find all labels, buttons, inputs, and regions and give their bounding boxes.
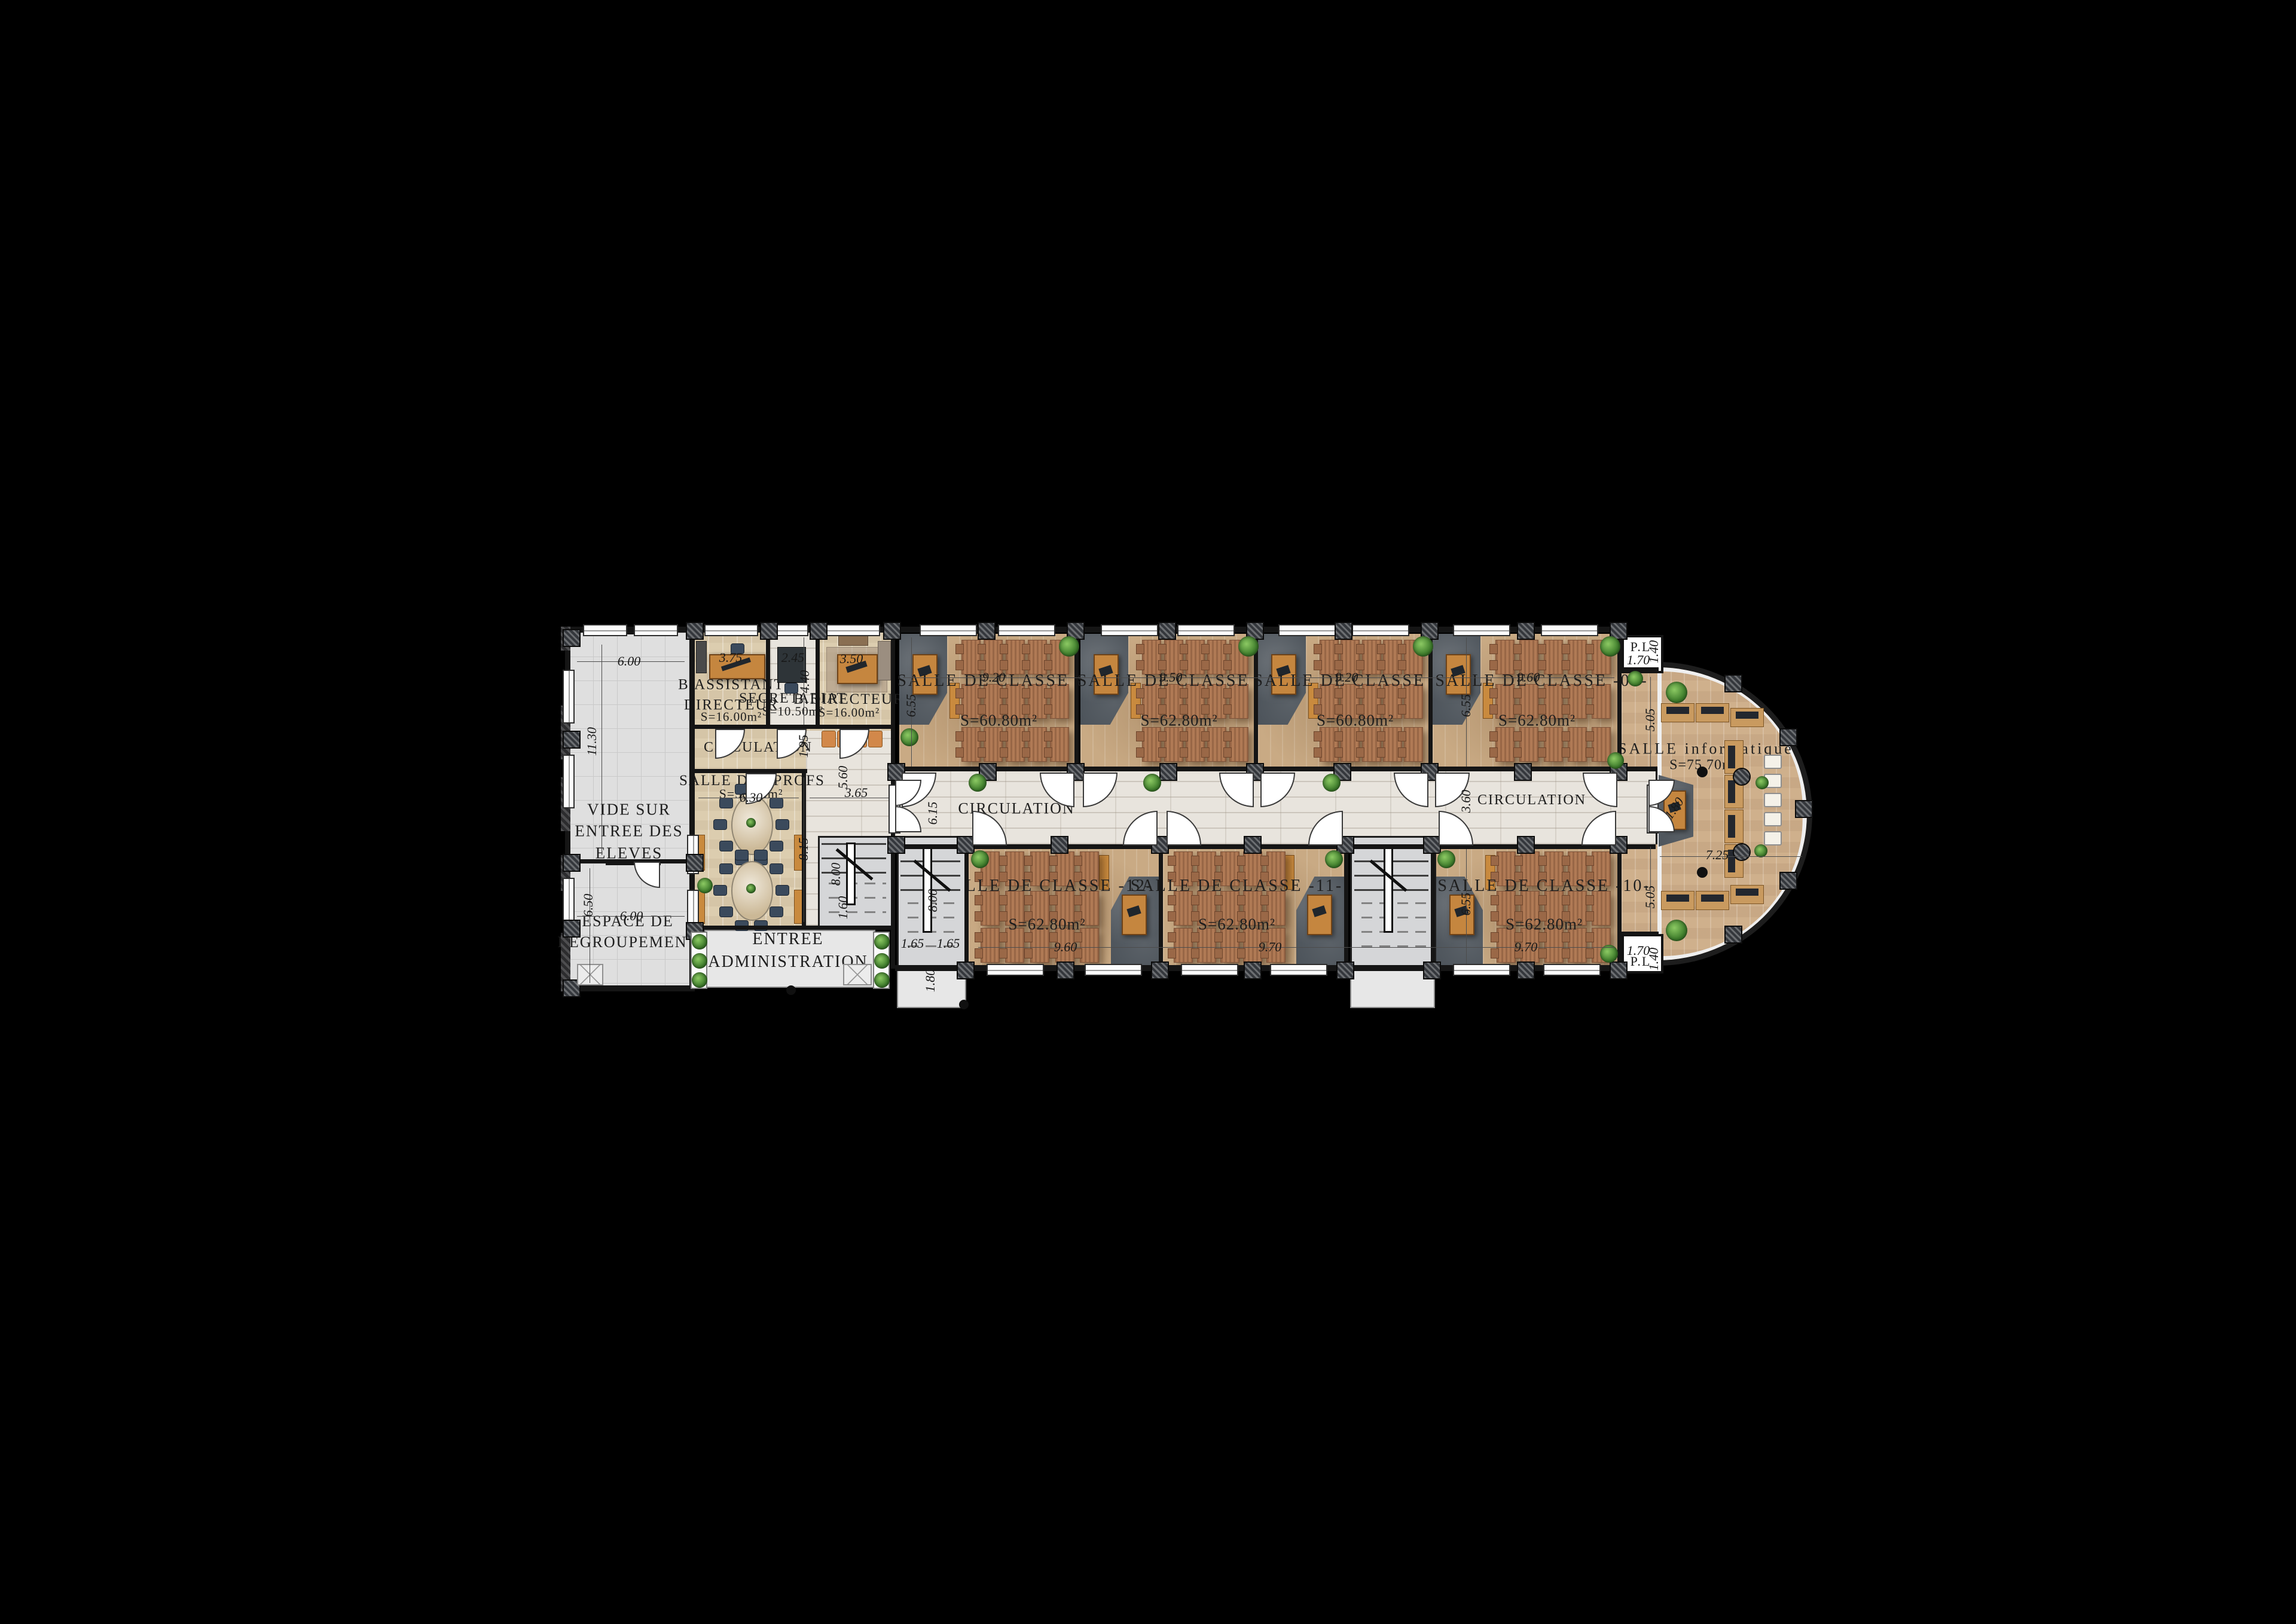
student-desk bbox=[981, 891, 1000, 926]
window bbox=[998, 624, 1055, 636]
dim-admin-stair-width: 1.60 bbox=[835, 896, 851, 920]
dim-c09-width: 9.60 bbox=[1517, 670, 1540, 685]
floor-plan-canvas: VIDE SUR ENTREE DES ELEVES ESPACE DE REG… bbox=[0, 0, 2296, 1624]
plant bbox=[969, 774, 987, 792]
column bbox=[1336, 961, 1354, 979]
dim-info-width: 7.25 bbox=[1706, 847, 1729, 863]
secretariat-chair bbox=[784, 683, 798, 694]
window bbox=[1085, 964, 1142, 976]
student-desk bbox=[1495, 727, 1515, 762]
computer-station bbox=[1696, 891, 1729, 910]
meeting-chair bbox=[735, 850, 749, 860]
dim-hall-width: 3.65 bbox=[845, 785, 868, 801]
stair-rail bbox=[1384, 845, 1393, 933]
dim-espace-height: 6.50 bbox=[581, 894, 596, 917]
meeting-chair bbox=[719, 798, 733, 808]
classroom-area: S=62.80m² bbox=[1198, 915, 1275, 934]
meeting-chair bbox=[770, 798, 783, 808]
meeting-chair bbox=[775, 885, 789, 896]
window bbox=[704, 624, 758, 636]
column bbox=[563, 854, 581, 872]
dim-corridor-left-width: 6.15 bbox=[925, 802, 941, 825]
computer-station bbox=[1661, 703, 1694, 722]
bin bbox=[1697, 767, 1708, 777]
dim-admin-stair-length: 8.00 bbox=[828, 863, 844, 886]
wall bbox=[694, 725, 891, 729]
column bbox=[887, 836, 905, 854]
plant bbox=[1238, 636, 1259, 657]
student-desk bbox=[1519, 727, 1538, 762]
computer-station bbox=[1730, 885, 1764, 904]
wall bbox=[1617, 849, 1622, 966]
teacher-desk bbox=[1307, 895, 1332, 935]
dim-c12-width: 9.60 bbox=[1054, 939, 1077, 955]
dim-pl-bottom-height: 1.40 bbox=[1646, 948, 1662, 971]
classroom-area: S=62.80m² bbox=[1498, 712, 1576, 730]
plant bbox=[1437, 850, 1455, 868]
crossed-planter bbox=[577, 964, 603, 985]
plant bbox=[1754, 844, 1767, 857]
walkway-column bbox=[959, 1000, 969, 1009]
walkway-column bbox=[786, 985, 796, 995]
window bbox=[1278, 624, 1336, 636]
dim-profs-width: 6.30 bbox=[740, 790, 763, 805]
column bbox=[957, 961, 975, 979]
plant bbox=[1607, 752, 1624, 769]
column bbox=[686, 854, 704, 872]
wall bbox=[565, 985, 694, 991]
window bbox=[1453, 964, 1510, 976]
dimension-line bbox=[602, 645, 602, 855]
dim-admin-circ-height: 1.95 bbox=[796, 735, 811, 758]
column bbox=[1514, 763, 1532, 781]
plant bbox=[1059, 636, 1079, 657]
plant bbox=[1323, 774, 1341, 792]
meeting-chair bbox=[713, 885, 727, 896]
dim-vide-height: 11.30 bbox=[584, 727, 600, 756]
wall bbox=[1344, 849, 1348, 966]
plant bbox=[1628, 671, 1643, 686]
column bbox=[1159, 763, 1177, 781]
spare-chair bbox=[1764, 831, 1782, 845]
dim-wstair-length: 8.00 bbox=[925, 889, 941, 912]
meeting-chair bbox=[770, 863, 783, 874]
meeting-chair bbox=[719, 863, 733, 874]
window bbox=[1177, 624, 1235, 636]
wall bbox=[816, 633, 820, 728]
dim-wstair-flight1: 1.65 bbox=[901, 936, 924, 951]
plant bbox=[697, 878, 713, 893]
plant bbox=[971, 850, 989, 868]
window bbox=[583, 624, 627, 636]
plant bbox=[1325, 850, 1343, 868]
dim-wstair-flight2: 1.65 bbox=[937, 936, 960, 951]
wall bbox=[1617, 633, 1622, 771]
student-desk bbox=[1050, 727, 1069, 762]
column bbox=[563, 629, 581, 647]
wall bbox=[1431, 849, 1435, 966]
waiting-chair bbox=[822, 731, 836, 747]
column bbox=[1151, 961, 1169, 979]
dim-assistant-width: 3.75 bbox=[719, 650, 743, 666]
wall bbox=[895, 767, 1656, 771]
dome-column bbox=[1795, 800, 1813, 818]
corridor-circulation-right: CIRCULATION bbox=[1477, 790, 1586, 810]
crossed-planter bbox=[843, 964, 872, 985]
stair-rail bbox=[846, 842, 856, 905]
student-desk bbox=[1404, 727, 1423, 762]
classroom-area: S=62.80m² bbox=[1140, 712, 1217, 730]
dim-c11-width: 9.70 bbox=[1259, 939, 1282, 955]
column bbox=[760, 622, 778, 640]
column bbox=[1057, 961, 1074, 979]
column bbox=[1517, 836, 1535, 854]
directeur-sofa bbox=[878, 641, 891, 680]
plant bbox=[900, 728, 918, 746]
dimension-line bbox=[903, 677, 1614, 678]
student-desk bbox=[1592, 891, 1611, 926]
window bbox=[1543, 964, 1601, 976]
plant bbox=[1666, 682, 1687, 703]
student-desk bbox=[1568, 727, 1587, 762]
wall bbox=[1622, 932, 1659, 935]
vide-entree-label: VIDE SUR ENTREE DES ELEVES bbox=[566, 798, 692, 863]
dim-c06-height: 6.55 bbox=[903, 694, 919, 718]
plant bbox=[1413, 636, 1433, 657]
meeting-chair bbox=[770, 841, 783, 851]
computer-station bbox=[1730, 708, 1764, 727]
student-desk bbox=[1544, 727, 1563, 762]
column bbox=[1423, 961, 1441, 979]
student-desk bbox=[1174, 891, 1193, 926]
column bbox=[1244, 836, 1262, 854]
dim-info-bottom-height: 5.05 bbox=[1642, 886, 1658, 909]
facade-pier bbox=[561, 933, 570, 969]
directeur-sofa bbox=[838, 635, 868, 646]
window bbox=[563, 755, 575, 808]
plant bbox=[1600, 636, 1620, 657]
directeur-area: S=16.00m² bbox=[819, 706, 880, 721]
dome-column bbox=[1779, 872, 1797, 890]
column bbox=[1244, 961, 1262, 979]
plant bbox=[1755, 776, 1769, 789]
plant bbox=[1143, 774, 1161, 792]
table-plant bbox=[746, 884, 756, 893]
dim-secretariat-depth: 4.40 bbox=[797, 670, 813, 694]
window bbox=[1101, 624, 1158, 636]
dim-c08-width: 9.20 bbox=[1335, 670, 1358, 685]
dome-column bbox=[1779, 728, 1797, 746]
wall bbox=[694, 769, 807, 773]
column bbox=[1158, 622, 1176, 640]
classroom-title: SALLE DE CLASSE -09- bbox=[1435, 671, 1648, 691]
student-desk bbox=[1544, 640, 1563, 674]
student-desk bbox=[1229, 727, 1248, 762]
window bbox=[563, 670, 575, 724]
dim-corridor-right-width: 3.60 bbox=[1458, 790, 1474, 813]
plant bbox=[874, 934, 890, 950]
wall bbox=[694, 926, 895, 930]
meeting-chair bbox=[754, 850, 768, 860]
column bbox=[686, 622, 704, 640]
waiting-chair bbox=[868, 731, 883, 747]
plant bbox=[692, 953, 707, 969]
dim-c10-width: 9.70 bbox=[1515, 939, 1538, 955]
window bbox=[1453, 624, 1510, 636]
middle-stair-vestibule bbox=[1350, 966, 1435, 1008]
classroom-area: S=62.80m² bbox=[1506, 915, 1583, 934]
window bbox=[1352, 624, 1409, 636]
dim-directeur-width: 3.50 bbox=[840, 651, 863, 667]
meeting-chair bbox=[775, 819, 789, 830]
column bbox=[1335, 622, 1352, 640]
shelf bbox=[696, 641, 707, 673]
dimension-line bbox=[1660, 856, 1802, 857]
window bbox=[920, 624, 977, 636]
column bbox=[1517, 961, 1535, 979]
dim-c07-width: 9.50 bbox=[1159, 670, 1183, 685]
meeting-chair bbox=[719, 841, 733, 851]
meeting-chair bbox=[719, 906, 733, 917]
dome-column bbox=[1724, 926, 1742, 944]
computer-station bbox=[1661, 891, 1694, 910]
window bbox=[1541, 624, 1598, 636]
column bbox=[563, 920, 581, 938]
wall bbox=[964, 849, 969, 966]
dim-vide-width: 6.00 bbox=[618, 654, 641, 669]
window bbox=[1181, 964, 1238, 976]
table-plant bbox=[746, 818, 756, 828]
dim-espace-width: 6.00 bbox=[620, 908, 643, 924]
student-desk bbox=[1174, 928, 1193, 963]
window bbox=[687, 890, 699, 927]
wall bbox=[891, 627, 895, 784]
column bbox=[1610, 961, 1628, 979]
window bbox=[634, 624, 678, 636]
spare-chair bbox=[1764, 793, 1782, 807]
dim-pl-top-height: 1.40 bbox=[1646, 640, 1662, 664]
dim-wstair-width: 1.80 bbox=[923, 969, 938, 993]
computer-station bbox=[1724, 810, 1744, 843]
spare-chair bbox=[1764, 812, 1782, 826]
column bbox=[1051, 836, 1068, 854]
dim-c06-width: 9.20 bbox=[982, 670, 1006, 685]
column bbox=[810, 622, 828, 640]
plant bbox=[874, 953, 890, 969]
classroom-area: S=60.80m² bbox=[1317, 712, 1394, 730]
window bbox=[987, 964, 1044, 976]
dim-c09-height: 6.55 bbox=[1458, 694, 1474, 718]
spare-chair bbox=[1764, 755, 1782, 769]
dim-secretariat-width: 2.45 bbox=[781, 650, 805, 666]
round-column bbox=[1733, 843, 1751, 861]
column bbox=[1517, 622, 1535, 640]
wall bbox=[766, 633, 770, 728]
wall bbox=[1159, 849, 1163, 966]
assistant-directeur-area: S=16.00m² bbox=[701, 710, 762, 725]
column bbox=[883, 622, 901, 640]
dimension-line bbox=[590, 868, 590, 983]
round-column bbox=[1733, 768, 1751, 786]
window bbox=[773, 624, 808, 636]
plant bbox=[874, 972, 890, 988]
classroom-area: S=62.80m² bbox=[1008, 915, 1085, 934]
teacher-desk bbox=[1122, 895, 1147, 935]
column bbox=[978, 622, 996, 640]
wall bbox=[895, 844, 1656, 849]
plant bbox=[692, 934, 707, 950]
window bbox=[1270, 964, 1327, 976]
dim-c10-height: 6.55 bbox=[1458, 893, 1474, 916]
dim-info-top-height: 5.05 bbox=[1642, 709, 1658, 732]
bin bbox=[1697, 867, 1708, 878]
computer-station bbox=[1696, 703, 1729, 722]
dome-column bbox=[1724, 674, 1742, 692]
meeting-chair bbox=[770, 906, 783, 917]
classroom-area: S=60.80m² bbox=[960, 712, 1037, 730]
plant bbox=[692, 972, 707, 988]
meeting-chair bbox=[713, 819, 727, 830]
column bbox=[563, 731, 581, 749]
plant bbox=[1666, 920, 1687, 941]
student-desk bbox=[1495, 640, 1515, 674]
window bbox=[826, 624, 880, 636]
classroom-title: SALLE DE CLASSE -12- bbox=[941, 877, 1153, 896]
dim-profs-height: 8.15 bbox=[796, 838, 811, 861]
student-desk bbox=[1568, 640, 1587, 674]
student-desk bbox=[981, 928, 1000, 963]
